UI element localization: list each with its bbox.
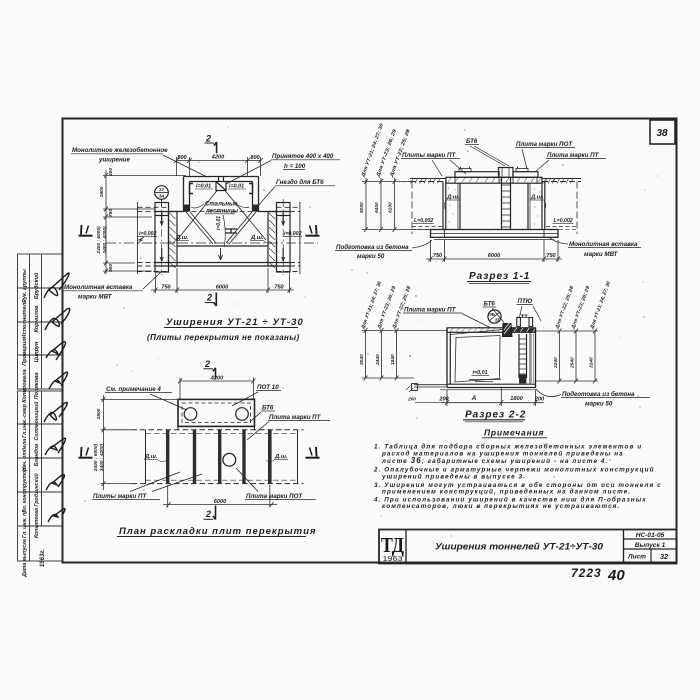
svg-text:Гнездо для БТ6: Гнездо для БТ6 bbox=[276, 179, 324, 186]
svg-text:2: 2 bbox=[205, 134, 211, 144]
svg-text:32: 32 bbox=[660, 552, 669, 561]
svg-text:2: 2 bbox=[206, 293, 212, 303]
svg-text:27: 27 bbox=[159, 187, 165, 192]
svg-text:марки 50: марки 50 bbox=[585, 401, 613, 408]
svg-text:Копировала: Копировала bbox=[22, 369, 28, 402]
svg-text:2400 ; 6000): 2400 ; 6000) bbox=[93, 443, 99, 472]
svg-text:400: 400 bbox=[108, 168, 114, 177]
svg-text:Плиты марки ПТ: Плиты марки ПТ bbox=[402, 152, 456, 159]
svg-text:Д.ш.: Д.ш. bbox=[274, 454, 288, 460]
svg-text:i=0,01: i=0,01 bbox=[229, 184, 244, 190]
svg-text:Д.ш.: Д.ш. bbox=[250, 235, 264, 241]
svg-text:План раскладки плит перекры: План раскладки плит перекрытия bbox=[119, 526, 317, 537]
svg-text:Плиты марки ПТ: Плиты марки ПТ bbox=[93, 493, 147, 500]
svg-text:Исполнитель: Исполнитель bbox=[22, 299, 28, 338]
svg-text:Выпуск 1: Выпуск 1 bbox=[635, 542, 666, 549]
svg-text:Принятое 400 х 400: Принятое 400 х 400 bbox=[272, 153, 334, 160]
svg-text:750: 750 bbox=[108, 209, 114, 217]
svg-text:НС-01-05: НС-01-05 bbox=[636, 532, 665, 539]
svg-text:Д.ш.: Д.ш. bbox=[446, 195, 460, 201]
svg-text:Д.ш.: Д.ш. bbox=[144, 454, 158, 460]
svg-text:1840: 1840 bbox=[390, 354, 396, 365]
svg-text:200: 200 bbox=[438, 397, 449, 403]
svg-text:Гродзинский: Гродзинский bbox=[33, 473, 40, 507]
svg-text:А: А bbox=[471, 395, 477, 402]
svg-text:Стальные: Стальные bbox=[205, 202, 238, 208]
svg-text:3400 ; 4200): 3400 ; 4200) bbox=[102, 226, 108, 254]
svg-text:БТ6: БТ6 bbox=[262, 405, 274, 412]
svg-text:i=0,01: i=0,01 bbox=[196, 184, 211, 190]
svg-text:применением конструкций, прив: применением конструкций, приведенных на … bbox=[382, 488, 631, 496]
svg-text:750: 750 bbox=[274, 284, 284, 290]
svg-text:Корнилов: Корнилов bbox=[34, 305, 40, 333]
svg-text:2540: 2540 bbox=[570, 357, 576, 369]
svg-text:Уширения тоннелей УТ-21÷УТ-30: Уширения тоннелей УТ-21÷УТ-30 bbox=[435, 542, 603, 552]
svg-text:38: 38 bbox=[656, 128, 668, 139]
svg-text:Подготовка из бетона: Подготовка из бетона bbox=[562, 391, 635, 398]
svg-text:Проверил: Проверил bbox=[22, 338, 28, 366]
svg-text:40: 40 bbox=[607, 567, 625, 584]
svg-text:БТ6: БТ6 bbox=[466, 138, 478, 145]
svg-text:Разрез 1-1: Разрез 1-1 bbox=[469, 271, 530, 282]
svg-text:200: 200 bbox=[407, 397, 416, 402]
svg-text:2440: 2440 bbox=[375, 354, 381, 366]
svg-text:Нач. отдела: Нач. отдела bbox=[22, 439, 28, 471]
svg-text:750: 750 bbox=[161, 284, 171, 290]
svg-text:h = 100: h = 100 bbox=[284, 163, 306, 170]
svg-text:Подготовка из бетона: Подготовка из бетона bbox=[336, 244, 409, 251]
svg-text:5000: 5000 bbox=[359, 202, 365, 213]
svg-text:3400 ; 4200): 3400 ; 4200) bbox=[99, 443, 105, 471]
svg-text:1. Таблица для подбора сбор: 1. Таблица для подбора сборных железобет… bbox=[374, 443, 642, 451]
svg-text:уширение: уширение bbox=[98, 157, 130, 164]
svg-text:1963г.: 1963г. bbox=[40, 549, 46, 567]
svg-text:Гл. конструктор: Гл. конструктор bbox=[22, 468, 28, 513]
svg-text:800: 800 bbox=[250, 155, 260, 161]
svg-text:Гл.инж.-смер: Гл.инж.-смер bbox=[22, 404, 28, 438]
svg-text:750: 750 bbox=[546, 253, 556, 259]
svg-text:марки 50: марки 50 bbox=[357, 253, 385, 260]
svg-text:Д.ш.: Д.ш. bbox=[175, 235, 189, 241]
svg-text:Д.ш.: Д.ш. bbox=[530, 195, 544, 201]
svg-text:2240: 2240 bbox=[553, 357, 559, 369]
svg-text:Плита марки ПТ: Плита марки ПТ bbox=[404, 307, 457, 314]
svg-text:листе 36; габаритные схемы: листе 36; габаритные схемы уширений - на… bbox=[381, 456, 608, 465]
svg-text:ПОТ 10: ПОТ 10 bbox=[257, 384, 279, 391]
svg-text:3040: 3040 bbox=[359, 354, 365, 365]
svg-text:1963: 1963 bbox=[383, 554, 403, 563]
svg-text:4200: 4200 bbox=[210, 376, 224, 382]
svg-text:ЗГ: ЗГ bbox=[495, 318, 501, 323]
svg-text:800: 800 bbox=[177, 155, 187, 161]
svg-text:6000: 6000 bbox=[216, 284, 229, 290]
svg-text:1800: 1800 bbox=[510, 396, 523, 402]
svg-text:Монолитная вставка: Монолитная вставка bbox=[569, 241, 638, 248]
svg-text:2: 2 bbox=[204, 359, 210, 369]
svg-text:900: 900 bbox=[108, 264, 114, 272]
svg-text:уширений приведены в выпуск: уширений приведены в выпуске 3. bbox=[381, 472, 526, 480]
svg-text:Примечания: Примечания bbox=[484, 428, 544, 438]
svg-text:марки МВТ: марки МВТ bbox=[78, 294, 113, 301]
svg-text:6100: 6100 bbox=[388, 202, 394, 213]
svg-text:Разрез 2-2: Разрез 2-2 bbox=[465, 410, 526, 421]
svg-text:6000: 6000 bbox=[488, 253, 501, 259]
svg-text:6000: 6000 bbox=[214, 499, 227, 505]
svg-text:Рук. группы: Рук. группы bbox=[22, 269, 28, 303]
svg-text:Гл. инж. пр.: Гл. инж. пр. bbox=[22, 508, 28, 538]
svg-text:Плита марки ПОТ: Плита марки ПОТ bbox=[516, 141, 573, 148]
svg-text:1800: 1800 bbox=[96, 408, 102, 419]
svg-text:Бландов: Бландов bbox=[34, 444, 40, 467]
svg-text:3140: 3140 bbox=[589, 357, 595, 368]
svg-text:См. примечание 4: См. примечание 4 bbox=[106, 386, 161, 393]
svg-text:Дата выпуска: Дата выпуска bbox=[22, 539, 28, 578]
svg-text:6400: 6400 bbox=[374, 202, 380, 213]
svg-text:Плита марки ПТ: Плита марки ПТ bbox=[547, 152, 600, 159]
svg-text:2400 ; 6000): 2400 ; 6000) bbox=[96, 226, 102, 255]
svg-text:Ципрун: Ципрун bbox=[34, 341, 40, 362]
svg-text:марки МВТ: марки МВТ bbox=[584, 251, 619, 258]
svg-text:34: 34 bbox=[159, 194, 165, 199]
svg-text:компенсаторов, люки в перек: компенсаторов, люки в перекрытиях не уст… bbox=[382, 503, 620, 510]
svg-text:Полякова: Полякова bbox=[34, 373, 40, 400]
svg-text:7223: 7223 bbox=[571, 566, 602, 580]
svg-text:Уширения УТ-21 ÷ УТ-30: Уширения УТ-21 ÷ УТ-30 bbox=[166, 317, 304, 328]
svg-text:Монолитная вставка: Монолитная вставка bbox=[64, 284, 133, 291]
svg-text:i=0,01: i=0,01 bbox=[216, 216, 222, 230]
svg-text:1800: 1800 bbox=[99, 186, 105, 197]
svg-text:ПТЮ: ПТЮ bbox=[518, 298, 533, 305]
svg-text:4200: 4200 bbox=[211, 155, 225, 161]
svg-text:Плита марки ПОТ: Плита марки ПОТ bbox=[246, 493, 303, 500]
svg-text:Копытеева: Копытеева bbox=[34, 508, 40, 538]
svg-text:БТ6: БТ6 bbox=[484, 301, 496, 308]
svg-text:2. Опалубочные и арматурные: 2. Опалубочные и арматурные чертежи моно… bbox=[373, 466, 655, 474]
svg-text:Лист: Лист bbox=[627, 554, 646, 561]
svg-text:2: 2 bbox=[205, 509, 211, 519]
svg-text:Соломоницкий: Соломоницкий bbox=[33, 401, 40, 441]
svg-text:(Плиты перекрытия не показа: (Плиты перекрытия не показаны) bbox=[147, 333, 300, 342]
svg-text:200: 200 bbox=[534, 397, 545, 403]
svg-text:ПБ: ПБ bbox=[488, 312, 495, 317]
svg-text:Монолитное железобетонное: Монолитное железобетонное bbox=[72, 147, 168, 154]
svg-text:750: 750 bbox=[433, 253, 443, 259]
svg-text:Брудский: Брудский bbox=[33, 272, 40, 299]
svg-text:Плита марки ПТ: Плита марки ПТ bbox=[269, 414, 322, 421]
